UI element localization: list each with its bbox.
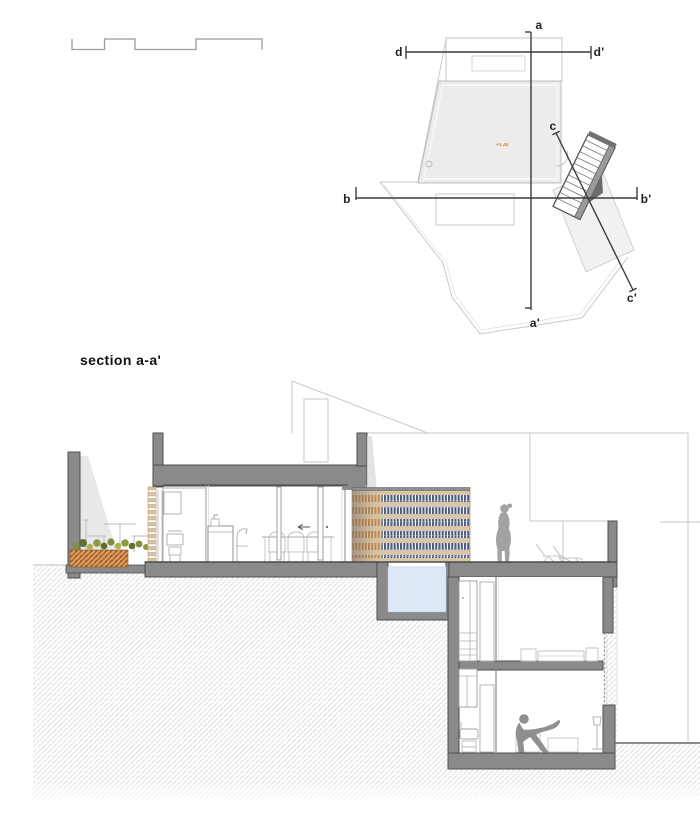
kitchen-island — [208, 526, 233, 562]
right-wall-upper-cut — [603, 577, 613, 633]
screen-top-cap — [352, 488, 470, 491]
drawing-sheet: +1.40 — [0, 0, 700, 827]
woman-silhouette — [496, 504, 512, 563]
upper-building — [148, 433, 380, 562]
courtyard — [66, 452, 155, 578]
left-wall-cut — [448, 577, 459, 753]
parapet-profile-detail — [72, 39, 262, 50]
door — [480, 582, 494, 661]
section-title: section a-a' — [80, 352, 161, 368]
mid-slab-cut — [459, 661, 603, 670]
brick-screen — [352, 488, 470, 563]
roof-upper-volume-outline — [446, 38, 562, 81]
right-wall-lower-cut — [603, 705, 615, 753]
main-floor-slab-cut — [145, 562, 388, 577]
hatch-fade — [30, 782, 700, 808]
roof-level-annotation: +1.40 — [496, 142, 509, 147]
brick-facing-strip — [148, 487, 156, 562]
roof-terrace-area — [418, 81, 561, 183]
cabinet — [459, 669, 477, 707]
stool — [237, 529, 247, 562]
tap — [214, 515, 218, 519]
plan-label-c: c — [550, 119, 557, 133]
sun-loungers — [536, 544, 583, 562]
pool-water — [388, 567, 446, 612]
sink — [211, 519, 219, 526]
plan-label-d: d — [395, 45, 403, 59]
plan-label-a-prime: a' — [530, 316, 540, 330]
terrace-slab-cut — [449, 562, 617, 577]
door-handle-dot — [326, 526, 328, 528]
fixture-seat — [167, 534, 183, 545]
roof-plan: +1.40 — [343, 18, 651, 334]
roof-slab-cut — [153, 465, 367, 486]
terrace-parapet-cut — [608, 521, 617, 562]
nightstand — [586, 648, 598, 661]
plan-label-a: a — [536, 18, 543, 32]
plan-label-d-prime: d' — [594, 45, 605, 59]
drawing-canvas: +1.40 — [0, 0, 700, 827]
sliding-door-panel — [277, 487, 281, 560]
lower-building — [448, 577, 615, 769]
kitchen-and-dining-furniture — [164, 485, 334, 562]
planter-soil — [70, 550, 128, 567]
sliding-door-panel — [318, 487, 323, 560]
slide-direction-arrow — [298, 525, 310, 530]
door — [480, 685, 494, 752]
right-parapet-wall-cut — [357, 433, 367, 466]
plan-label-c-prime: c' — [627, 291, 637, 305]
section-drawing — [30, 381, 700, 808]
bed-pillow — [521, 649, 536, 661]
washbasin — [460, 729, 478, 739]
plan-label-b-prime: b' — [641, 192, 652, 206]
plan-label-b: b — [343, 192, 351, 206]
wall-cabinet — [164, 492, 181, 514]
foundation-slab-cut — [448, 753, 615, 769]
